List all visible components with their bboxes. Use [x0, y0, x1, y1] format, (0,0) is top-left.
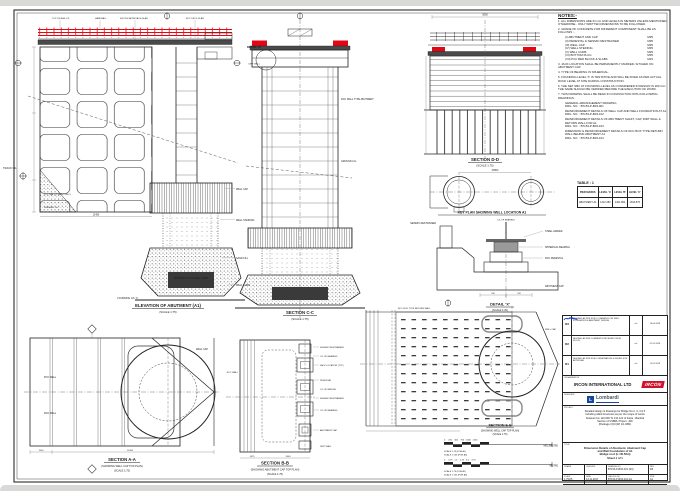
cad-file-value: B7153-P-B03-101-A1 [608, 478, 647, 481]
section-cc-view: DETAIL-'X' RCC WALL TYPE ABUTMENT GROUND… [235, 12, 374, 321]
detail-x-view: C/L OF BEARING SEISMIC RESTRAINER STEEL … [410, 219, 570, 313]
key-plan-view: 40500 KEY PLAN SHOWING WELL LOCATION A1 [430, 169, 556, 215]
scale-note-4: SCALE 1:150 (FOR A3) [444, 474, 467, 477]
section-dd-scale: (SCALE 1:75) [476, 164, 493, 168]
bb-callout-1: C/L OF BEARING [320, 355, 338, 358]
concrete-grade-list: (I) ABUTMENT AND CAPM35(II) PEDESTAL & S… [558, 36, 668, 61]
plan-bb-dim-1: 1475 [250, 456, 256, 458]
section-aa-plan: PCC WALL RCC WALL WELL CAP 1500 11450 SE… [24, 325, 220, 473]
section-bb-sub: (SHOWING ABUTMENT CAP TOP PLAN) [251, 468, 300, 472]
signature-fields: DRAWN CHECKED DRAWING NO. B7153-P-B03-10… [563, 465, 667, 485]
section-ee-plan: RCC BOX TYPE RETURN WALL WELL CAP SECTIO… [360, 299, 560, 436]
designer-name: Lombardi [596, 395, 619, 403]
drawn-cell: DRAWN [563, 465, 585, 475]
reference-number: DRG. NO. : B7153-P-B03-001 [565, 105, 668, 108]
scale-bar1-numbers: 0 250 500 750 1000 1250 [444, 440, 478, 442]
bb-left-callout: RCC WALL [227, 371, 239, 374]
section-dd-view: 5600 SECTION D-D (SCALE 1:75) [424, 14, 546, 168]
drawn-label: DRAWN [564, 466, 583, 468]
notes-panel: NOTES:- 1. ALL DIMENSIONS ARE IN mm AND … [558, 13, 668, 141]
scale-note-1: SCALE 1:75 (FOR A1) [444, 450, 466, 453]
detail-x-dim-2: 700 [517, 293, 521, 295]
project-description: Detailed design & Drawings for Bridge No… [563, 410, 667, 426]
callout-seismic-restrainer: SEISMIC RESTRAINER [410, 222, 436, 225]
revision-row: R2REVISED AS PER COMMENTS RECEIVED FROM … [563, 336, 667, 356]
reference-drawing: GENERAL ARRANGEMENT DRAWINGDRG. NO. : B7… [558, 102, 668, 109]
note-3: 3. JACK LOCATION SHALL BE PERMANENTLY MA… [558, 63, 668, 70]
bb-callout-5: SEISMIC RESTRAINER [320, 397, 344, 400]
reference-drawing: REINFORCEMENT DETAILS OF ABUTMENT SHAFT,… [558, 118, 668, 128]
pile-lines [432, 110, 538, 154]
note-6: 6. THE NET SBC AT FOUNDING LEVEL AS CONS… [558, 85, 668, 92]
rev-cell: REV R3 [649, 465, 667, 475]
callout-top-of-rail: TOP OF RAIL LVL [52, 17, 71, 20]
reference-drawing: REINFORCEMENT DETAILS OF WELL CAP AND WE… [558, 110, 668, 117]
revision-id: R2 [563, 336, 572, 355]
callout-rcc-pedestal: RCC PEDESTAL [545, 257, 564, 260]
revision-description: REVISED AS PER COMMENTS RECEIVED FROM IR… [572, 336, 630, 355]
checked-label: CHECKED [586, 466, 605, 468]
callout-finished-gl: FINISHED G.L. [44, 207, 59, 209]
scale-bar2-numbers: 0 0.75 1.5 2.25 3.0 3.75 [444, 460, 476, 462]
scale-note-2: SCALE 1:150 (FOR A3) [444, 454, 467, 457]
elevation-label: ELEVATION OF ABUTMENT (A1) [135, 303, 201, 308]
callout-well-cap-ee: WELL CAP [545, 328, 557, 331]
note-4: 4. TYPE OF BEARING IS SPHERICAL. [558, 71, 668, 74]
lombardi-logo-icon: L [587, 396, 594, 403]
reference-number: DRG. NO. : B7153-P-B03-104 [565, 137, 668, 140]
key-plan-label: KEY PLAN SHOWING WELL LOCATION A1 [458, 211, 527, 215]
bb-callout-2: JACK LOCATION (TYP) [320, 364, 344, 367]
callout-rcc-wall-type: RCC WALL TYPE ABUTMENT [341, 98, 374, 101]
detail-x-reference-label: DETAIL-'X' [247, 45, 261, 49]
section-aa-scale: (SCALE 1:75) [114, 469, 130, 473]
title-block: R3REVISED AS PER RDSO COMMENTS ON WELL F… [562, 315, 668, 481]
bb-callout-4: C/L OF BRIDGE [320, 389, 337, 391]
revision-table: R3REVISED AS PER RDSO COMMENTS ON WELL F… [563, 316, 667, 376]
elevation-dim: 11450 [93, 214, 100, 217]
note-2: 2. GRADE OF CONCRETE FOR DIFFERENT COMPO… [558, 28, 668, 35]
section-cc-label: SECTION C-C [286, 310, 314, 315]
date-value: 13.11.2017 [586, 478, 605, 481]
cad-file-cell: CAD FILE NO. B7153-P-B03-101-A1 [607, 475, 649, 485]
spherical-bearing [494, 242, 518, 252]
revision-sign: sd/- [630, 356, 643, 375]
track-centerline-label: TRACK C/L [3, 166, 17, 170]
revision-date: 16.04.2018 [643, 316, 667, 335]
scale-cell: SCALE 1:75/25 [563, 475, 585, 485]
callout-spherical-bearing: SPHERICAL BEARING [545, 246, 570, 249]
bb-callout-8: DIRT WALL [320, 445, 332, 448]
note-5: 5. FOUNDING LEVEL 'X' IS TENTATIVE AND W… [558, 76, 668, 83]
designer-label: DESIGNER [564, 394, 574, 396]
bb-callout-0: SEISMIC RESTRAINER [320, 346, 344, 349]
bb-callout-7: ABUTMENT CAP [320, 429, 338, 432]
section-ee-label: SECTION E-E [489, 424, 513, 428]
organisation-row: ORGANISATION IRCON INTERNATIONAL LTD IRC… [563, 376, 667, 393]
callout-approach-slab: 600 THK APPROACH SLAB [120, 17, 148, 20]
grid-marker-icon [88, 325, 96, 473]
founding-level-label: FOUNDING LVL 'X' [117, 297, 138, 300]
detail-x-label: DETAIL 'X' [490, 302, 510, 307]
scale-bar1-unit: MILLIMETRE [544, 445, 559, 448]
levels-table-panel: TABLE : 1 PIER MARKSLEVEL 'A'LEVEL 'B'LE… [577, 181, 675, 208]
section-aa-label: SECTION A-A [108, 457, 136, 462]
detail-x-scale: (SCALE 1:20) [492, 308, 508, 312]
callout-well-cap: WELL CAP [236, 188, 248, 191]
scale-value: 1:75/25 [564, 478, 583, 481]
table1-header: PIER MARKS [578, 187, 599, 198]
callout-dirt-wall: DIRT WALL [248, 63, 260, 66]
elevation-scale: (SCALE 1:75) [159, 310, 176, 314]
track-centerline-icon [19, 172, 27, 180]
reference-number: DRG. NO. : B7153-P-B03-103 [565, 125, 668, 128]
callout-abutment-cap: ABUTMENT CAP [545, 285, 564, 288]
section-bb-label: SECTION B-B [261, 461, 289, 466]
revision-id: R1 [563, 356, 572, 375]
section-bb-scale: (SCALE 1:75) [267, 472, 283, 476]
bb-callout-6: C/L OF BEARING [320, 409, 338, 412]
bottom-plug-label: BOTTOM PLUG IN WELL CURB [174, 278, 208, 280]
callout-rcc-wall-plan: RCC WALL [44, 412, 57, 415]
reference-drawing: DIMENSION & REINFORCEMENT DETAILS OF RCC… [558, 130, 668, 140]
detail-x-dim-1: 700 [491, 293, 495, 295]
section-cc-scale: (SCALE 1:75) [291, 317, 308, 321]
section-bb-plan: SEISMIC RESTRAINER C/L OF BEARING JACK L… [226, 340, 344, 476]
revision-sign: sd/- [630, 336, 643, 355]
grid-marker-icon [445, 299, 451, 307]
scale-bars: 0 250 500 750 1000 1250 MILLIMETRE SCALE… [444, 440, 558, 477]
section-ee-scale: (SCALE 1:75) [493, 433, 508, 436]
title-line: Sheet 1 of 1 [565, 457, 665, 460]
fill-grid-area [396, 312, 512, 426]
well-cap [150, 183, 232, 213]
grade-value: M15 [647, 58, 653, 62]
table1-header: LEVEL 'C' [627, 187, 642, 198]
note-1: 1. ALL DIMENSIONS ARE IN mm AND LEVELS I… [558, 20, 668, 27]
table-row: ABUTMENT-A11412.2801401.8641394.875 [578, 198, 643, 208]
drawing-title: Dimension Details of Abutment, Abutment … [563, 447, 667, 461]
plan-bb-dim-2: 2600 [286, 456, 292, 458]
section-aa-sub: (SHOWING WELL CAP TOP PLAN) [101, 464, 143, 468]
railing-red [38, 28, 232, 38]
callout-well-cap-plan: WELL CAP [196, 348, 208, 351]
section-dd-dim: 5600 [482, 14, 488, 17]
plan-aa-dim-2: 11450 [127, 450, 134, 452]
revision-row: R1REVISED AS PER RDSO OBSERVATION & ISSU… [563, 356, 667, 376]
grade-component: (VII) PCC BED BLOCK & SLABS [565, 58, 608, 62]
size-cell: SIZE A1 [649, 475, 667, 485]
callout-sand-fill: SAND FILL [236, 257, 249, 260]
callout-well-steining: WELL STEINING [236, 219, 255, 222]
drawing-title-row: TITLE Dimension Details of Abutment, Abu… [563, 443, 667, 465]
project-row: PROJECT Detailed design & Drawings for B… [563, 406, 667, 443]
key-plan-dim: 40500 [492, 169, 499, 172]
drawing-sheet: TOP OF RAIL LVL HANDRAIL 600 THK APPROAC… [0, 0, 680, 491]
notes-title: NOTES:- [558, 13, 668, 18]
organisation-label: ORGANISATION [564, 377, 579, 379]
callout-pcc-wall: PCC WALL (PLAIN CONC.) [44, 193, 71, 196]
bb-callout-3: PEDESTAL [320, 379, 332, 382]
table1-cell: 1412.280 [598, 198, 613, 208]
designer-row: DESIGNER L Lombardi [563, 393, 667, 406]
callout-deck-slab: RCC DECK SLAB [186, 17, 204, 20]
grade-row: (VII) PCC BED BLOCK & SLABSM15 [558, 58, 653, 62]
table1-cell: ABUTMENT-A1 [578, 198, 599, 208]
drawing-no-value: B7153-P-B03-101 (S0) [608, 468, 647, 471]
scale-bar2-unit: METRE [550, 465, 559, 468]
revision-description: REVISED AS PER RDSO COMMENTS ON WELL FOU… [572, 316, 630, 335]
project-line: (Package (O)C(W) 1/1-NB1) [566, 423, 664, 426]
organisation-name: IRCON INTERNATIONAL LTD [574, 382, 631, 387]
table1-cell: 1401.864 [613, 198, 628, 208]
scale-note-3: SCALE 1:75 (FOR A1) [444, 470, 466, 473]
revision-description: REVISED AS PER RDSO OBSERVATION & ISSUED… [572, 356, 630, 375]
project-label: PROJECT [564, 407, 573, 409]
callout-pcc-wall-plan: PCC WALL [44, 376, 57, 379]
box-return-wall [40, 47, 152, 212]
table1-header: LEVEL 'B' [613, 187, 628, 198]
levels-table: PIER MARKSLEVEL 'A'LEVEL 'B'LEVEL 'C' AB… [577, 186, 643, 208]
plan-aa-dim-1: 1500 [39, 450, 45, 452]
callout-ground-lvl: GROUND LVL [341, 160, 357, 163]
revision-date: 07.02.2018 [643, 336, 667, 355]
callout-box-return-wall: RCC BOX TYPE RETURN WALL [398, 307, 431, 310]
bottom-gray-bar [0, 485, 680, 491]
size-value: A1 [650, 478, 666, 481]
revision-sign: sd/- [630, 316, 643, 335]
table1-caption: TABLE : 1 [577, 181, 675, 185]
reference-drawing-list: GENERAL ARRANGEMENT DRAWINGDRG. NO. : B7… [558, 102, 668, 140]
rev-value: R3 [650, 468, 666, 471]
section-dd-label: SECTION D-D [471, 157, 499, 162]
callout-handrail: HANDRAIL [95, 17, 107, 20]
ircon-logo: IRCON [641, 381, 665, 388]
table1-cell: 1394.875 [627, 198, 642, 208]
detail-x-cl-label: C/L OF BEARING [497, 219, 515, 222]
note-7: 7. THIS DRAWING SHALL BE READ IN CONJUNC… [558, 93, 668, 100]
revision-date: 11.01.2018 [643, 356, 667, 375]
date-cell: DATE 13.11.2017 [585, 475, 607, 485]
checked-cell: CHECKED [585, 465, 607, 475]
drawing-no-cell: DRAWING NO. B7153-P-B03-101 (S0) [607, 465, 649, 475]
table1-header: LEVEL 'A' [598, 187, 613, 198]
elevation-abutment-view: TOP OF RAIL LVL HANDRAIL 600 THK APPROAC… [3, 12, 255, 314]
title-label: TITLE [564, 444, 569, 446]
callout-steel-girder: STEEL GIRDER [545, 230, 563, 233]
